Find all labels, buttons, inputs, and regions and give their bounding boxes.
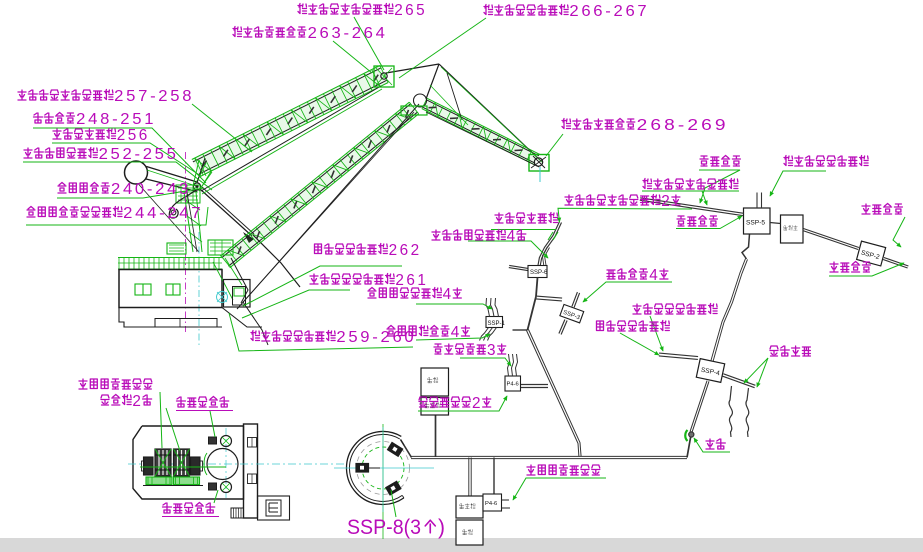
svg-text:): )	[438, 516, 445, 539]
svg-text:268-269: 268-269	[637, 117, 729, 134]
svg-text:3: 3	[487, 342, 496, 359]
svg-text:261: 261	[395, 272, 428, 289]
svg-text:SSP-1: SSP-1	[488, 321, 506, 327]
svg-text:263-264: 263-264	[308, 25, 388, 42]
svg-text:SSP-5: SSP-5	[746, 220, 765, 227]
svg-text:4: 4	[649, 267, 658, 284]
svg-text:259-260: 259-260	[336, 329, 416, 346]
svg-text:P4-6: P4-6	[507, 382, 519, 388]
svg-text:SSP-6: SSP-6	[530, 270, 548, 276]
svg-text:262: 262	[389, 242, 422, 259]
svg-text:2: 2	[132, 393, 141, 410]
svg-text:252-255: 252-255	[99, 146, 179, 163]
svg-text:244-247: 244-247	[123, 205, 203, 222]
svg-text:257-258: 257-258	[114, 88, 194, 105]
svg-text:4: 4	[451, 324, 460, 341]
svg-text:240-243: 240-243	[111, 181, 191, 198]
svg-text:248-251: 248-251	[76, 111, 156, 128]
svg-text:2: 2	[472, 395, 481, 412]
svg-text:2: 2	[661, 193, 670, 210]
svg-text:4: 4	[443, 286, 452, 303]
svg-text:265: 265	[394, 2, 427, 19]
svg-text:256: 256	[117, 127, 150, 144]
svg-text:P4-6: P4-6	[485, 501, 497, 507]
svg-text:SSP-8(3: SSP-8(3	[347, 516, 421, 539]
svg-text:4: 4	[507, 228, 516, 245]
svg-text:266-267: 266-267	[569, 3, 649, 20]
